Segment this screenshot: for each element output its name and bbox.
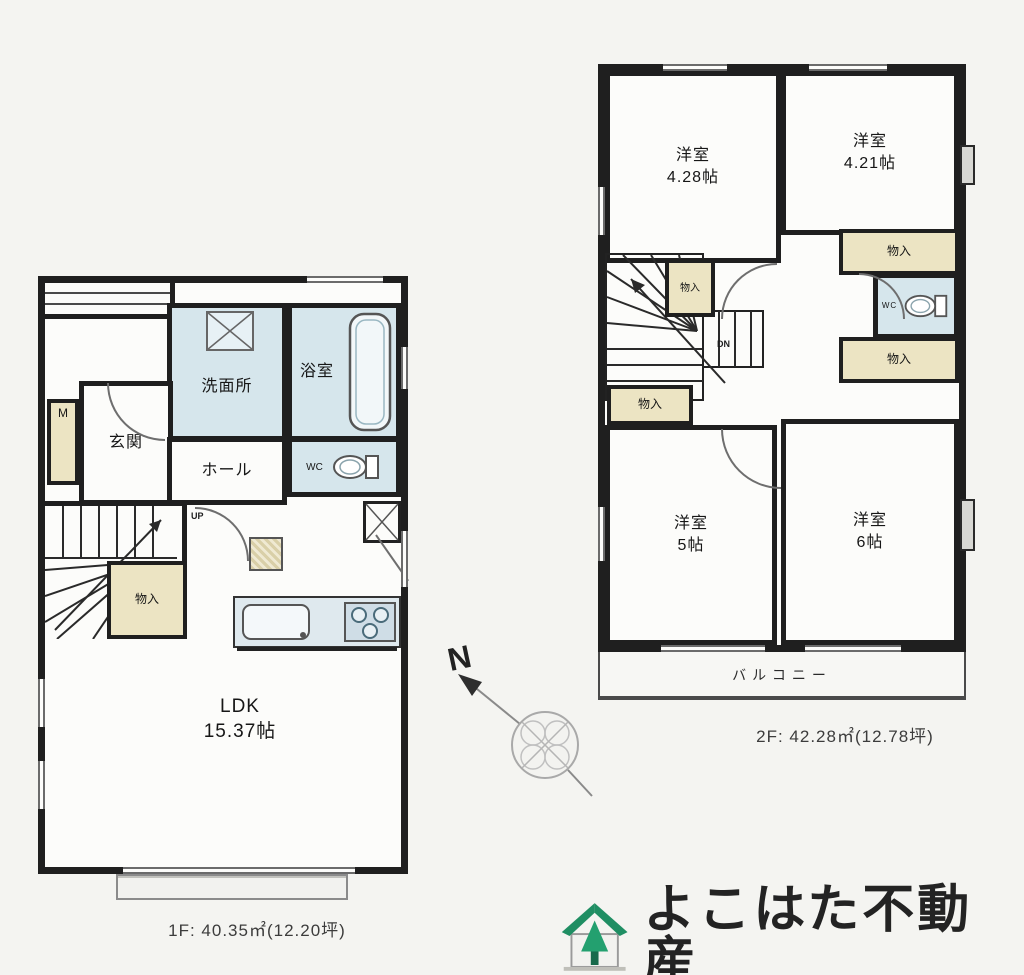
north-arrow-icon: [430, 630, 605, 805]
toilet-icon: [328, 452, 382, 482]
plan-1f: 洗面所 浴室 M 玄関 ホール WC: [38, 276, 408, 874]
closet-stairs-label: 物入: [680, 282, 700, 295]
window-top-ne: [809, 64, 887, 71]
bath-label: 浴室: [300, 362, 334, 383]
company-name: よこはた不動産: [643, 884, 1024, 975]
closet-2f-stairs: 物入: [665, 259, 715, 317]
wc-2f-label: WC: [882, 301, 897, 311]
stairs-up-label: UP: [191, 511, 204, 521]
toilet-icon-2f: [900, 292, 950, 320]
bay-window-se: [960, 499, 975, 551]
window-left-nw: [598, 187, 605, 235]
plan-2f: 洋室 4.28帖 洋室 4.21帖 物入 WC 物入: [598, 64, 966, 652]
meter-box: M: [47, 399, 79, 485]
window-bottom-main: [123, 867, 355, 874]
hall-label: ホール: [201, 461, 252, 482]
room-sw-size: 5帖: [678, 536, 705, 557]
room-nw-label: 洋室: [676, 146, 710, 167]
room-wc-1f: WC: [287, 437, 401, 497]
closet-2f-east-lower: 物入: [839, 337, 959, 383]
wc-1f-label: WC: [306, 461, 323, 474]
kitchen-counter-icon: [233, 591, 401, 653]
entrance-porch: [45, 283, 175, 319]
room-2f-ne: 洋室 4.21帖: [781, 71, 959, 235]
closet-east-lower-label: 物入: [887, 352, 911, 368]
window-left-ldk-2: [38, 761, 45, 809]
floor1-area-caption: 1F: 40.35㎡(12.20坪): [112, 916, 402, 941]
room-2f-nw: 洋室 4.28帖: [605, 71, 781, 263]
balcony: バルコニー: [598, 652, 966, 700]
senmenjo-label: 洗面所: [201, 377, 252, 398]
room-wc-2f: WC: [873, 273, 959, 339]
floor2-area-caption: 2F: 42.28㎡(12.78坪): [700, 722, 990, 747]
genkan-label: 玄関: [109, 433, 143, 454]
ldk-label-block: LDK 15.37帖: [155, 695, 325, 744]
window-bottom-sw: [661, 645, 765, 652]
closet-2f-west: 物入: [607, 385, 693, 425]
meter-label: M: [58, 406, 68, 422]
room-2f-se: 洋室 6帖: [781, 419, 959, 645]
window-bottom-se: [805, 645, 901, 652]
washing-machine-icon: [206, 311, 254, 351]
refrigerator-space-icon: [249, 537, 283, 571]
window-top-bath: [307, 276, 383, 283]
room-se-label: 洋室: [853, 511, 887, 532]
terrace-step: [116, 874, 348, 900]
company-logo: よこはた不動産: [556, 884, 1024, 975]
pipe-space-icon: [363, 501, 401, 543]
room-ne-size: 4.21帖: [844, 154, 896, 175]
balcony-label: バルコニー: [732, 666, 832, 684]
closet-1f: 物入: [107, 561, 187, 639]
room-se-size: 6帖: [857, 533, 884, 554]
room-bath: 浴室: [287, 303, 401, 441]
room-senmenjo: 洗面所: [167, 303, 287, 441]
window-left-ldk-1: [38, 679, 45, 727]
bay-window-ne: [960, 145, 975, 185]
window-top-nw: [663, 64, 727, 71]
company-logo-icon: [556, 897, 633, 975]
closet-1f-label: 物入: [135, 592, 159, 608]
room-sw-label: 洋室: [674, 514, 708, 535]
closet-west-label: 物入: [638, 397, 662, 413]
room-hall: ホール: [167, 437, 287, 505]
bathtub-icon: [348, 312, 392, 432]
ldk-size: 15.37帖: [155, 720, 325, 745]
window-bath-right: [401, 347, 408, 389]
window-ldk-right: [401, 531, 408, 587]
closet-2f-east-upper: 物入: [839, 229, 959, 275]
ldk-label: LDK: [155, 695, 325, 720]
floor-plan-image: 洗面所 浴室 M 玄関 ホール WC: [0, 0, 1024, 975]
room-genkan: 玄関: [79, 381, 173, 505]
room-nw-size: 4.28帖: [667, 168, 719, 189]
window-left-sw: [598, 507, 605, 561]
room-2f-sw: 洋室 5帖: [605, 425, 777, 645]
closet-east-upper-label: 物入: [887, 244, 911, 260]
room-ne-label: 洋室: [853, 132, 887, 153]
stairs-dn-label: DN: [717, 339, 730, 349]
